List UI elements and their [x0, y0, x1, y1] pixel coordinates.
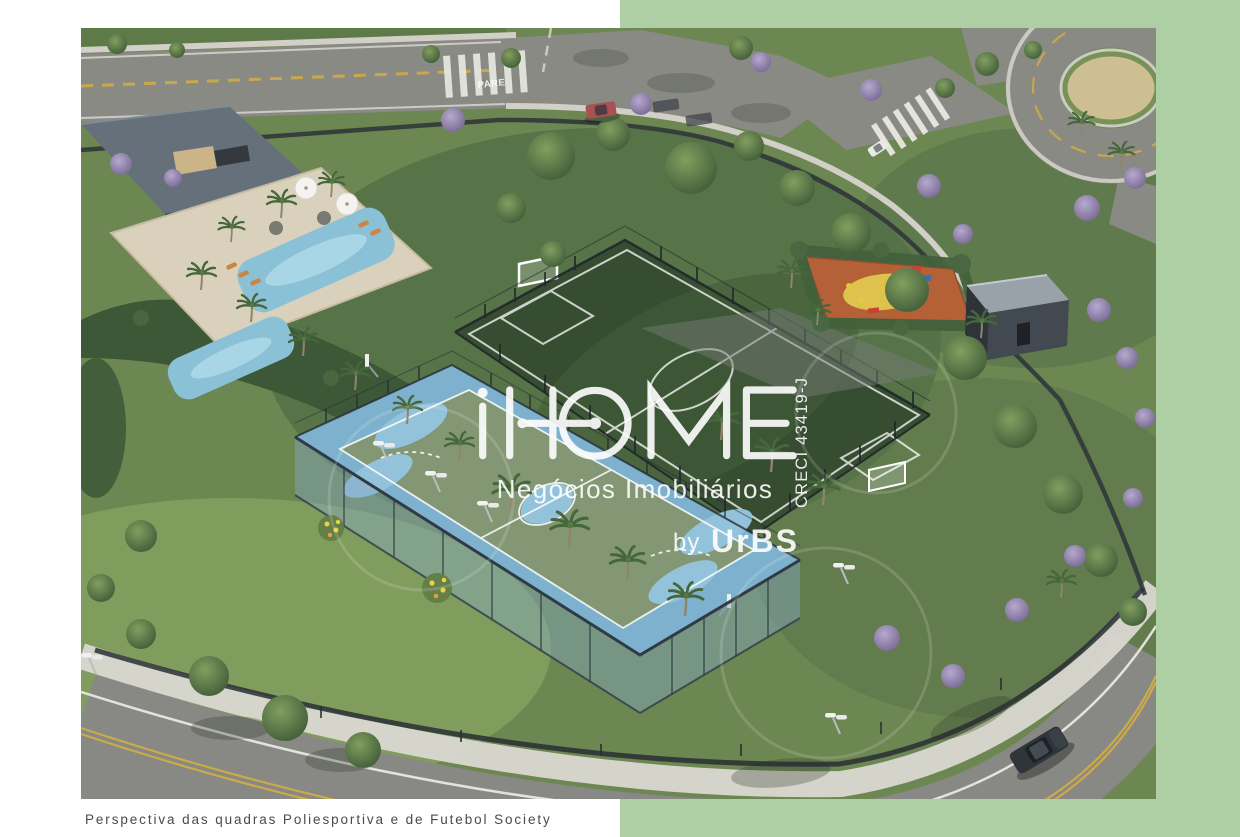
- watermark-subtitle: Negócios Imobiliários: [497, 474, 774, 504]
- watermark-creci: CRECI 43419-J: [793, 377, 811, 508]
- page: PARE: [0, 0, 1240, 837]
- photo-caption: Perspectiva das quadras Poliesportiva e …: [85, 812, 552, 827]
- watermark-by-label: by: [673, 529, 700, 556]
- aerial-render-photo: PARE: [81, 28, 1156, 799]
- watermark-by-brand: UrBS: [711, 523, 799, 559]
- scene-illustration: PARE: [81, 28, 1156, 799]
